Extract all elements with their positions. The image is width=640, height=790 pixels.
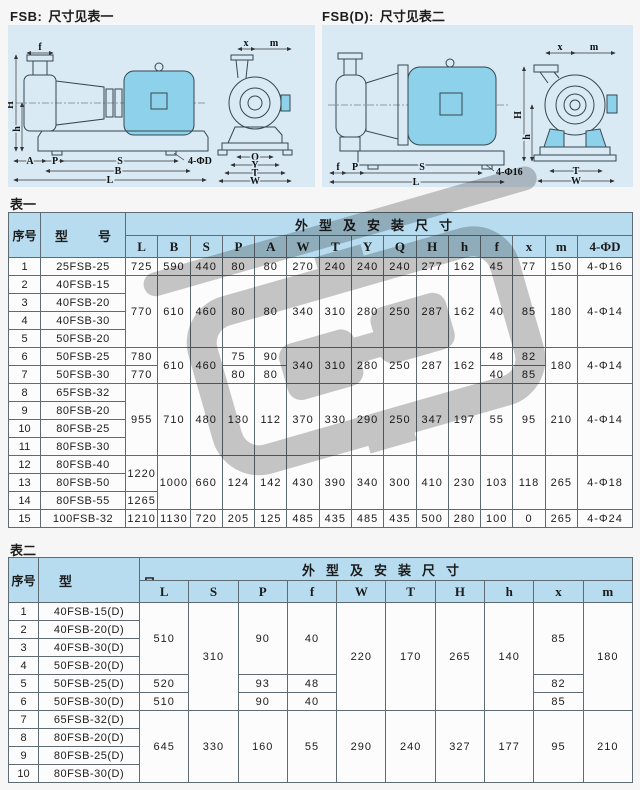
dimension-value-cell: 340 xyxy=(287,276,319,348)
dimension-value-cell: 780 xyxy=(126,348,158,366)
dimension-value-cell: 103 xyxy=(481,456,513,510)
dimension-value-cell: 162 xyxy=(448,258,480,276)
dimension-value-cell: 4-Φ18 xyxy=(577,456,632,510)
dimension-value-cell: 500 xyxy=(416,510,448,528)
group-header: 外型及安装尺寸 号 xyxy=(140,558,633,581)
dimension-value-cell: 725 xyxy=(126,258,158,276)
dimension-value-cell: 610 xyxy=(158,348,190,384)
dimension-value-cell: 660 xyxy=(190,456,222,510)
dimension-value-cell: 80 xyxy=(222,366,254,384)
dimension-value-cell: 4-Φ24 xyxy=(577,510,632,528)
dimension-value-cell: 720 xyxy=(190,510,222,528)
dimension-value-cell: 485 xyxy=(351,510,383,528)
dimension-value-cell: 130 xyxy=(222,384,254,456)
dimension-value-cell: 162 xyxy=(448,276,480,348)
dimension-value-cell: 90 xyxy=(238,693,287,711)
dimension-value-cell: 142 xyxy=(255,456,287,510)
row-index-cell: 8 xyxy=(9,384,41,402)
table1-body: 125FSB-257255904408080270240240240277162… xyxy=(9,258,633,528)
row-index-cell: 10 xyxy=(9,765,39,783)
table-row: 650FSB-257806104607590340310280250287162… xyxy=(9,348,633,366)
dimension-value-cell: 40 xyxy=(287,693,336,711)
dimension-value-cell: 90 xyxy=(238,603,287,675)
row-index-cell: 1 xyxy=(9,258,41,276)
col-letter: f xyxy=(287,581,336,603)
table-row: 650FSB-30(D)510904085 xyxy=(9,693,633,711)
dimension-value-cell: 170 xyxy=(386,603,435,711)
dimension-value-cell: 590 xyxy=(158,258,190,276)
col-letter: f xyxy=(481,236,513,258)
dimension-value-cell: 250 xyxy=(384,348,416,384)
fsbd-diagram-panel: f P S 4-Φ16 L x m H h T W xyxy=(322,25,633,187)
model-cell: 25FSB-25 xyxy=(41,258,126,276)
row-index-cell: 8 xyxy=(9,729,39,747)
row-index-cell: 4 xyxy=(9,657,39,675)
dimension-value-cell: 485 xyxy=(287,510,319,528)
dimension-value-cell: 280 xyxy=(448,510,480,528)
dim-label-h: h xyxy=(12,126,23,132)
row-index-cell: 13 xyxy=(9,474,41,492)
dimension-value-cell: 510 xyxy=(140,693,189,711)
dim-label-m: m xyxy=(590,42,599,53)
row-index-cell: 15 xyxy=(9,510,41,528)
dimension-value-cell: 90 xyxy=(255,348,287,366)
dimension-value-cell: 55 xyxy=(481,384,513,456)
dim-label-B: B xyxy=(115,166,122,177)
dimension-value-cell: 710 xyxy=(158,384,190,456)
dimension-value-cell: 48 xyxy=(287,675,336,693)
dimension-value-cell: 150 xyxy=(545,258,577,276)
dimension-value-cell: 0 xyxy=(513,510,545,528)
dimension-value-cell: 520 xyxy=(140,675,189,693)
dimension-value-cell: 277 xyxy=(416,258,448,276)
dimension-value-cell: 240 xyxy=(384,258,416,276)
table1-caption: 表一 xyxy=(10,194,36,213)
dimension-value-cell: 85 xyxy=(534,693,583,711)
dim-label-S: S xyxy=(419,162,425,173)
row-index-cell: 2 xyxy=(9,276,41,294)
table-row: 140FSB-15(D)510310904022017026514085180 xyxy=(9,603,633,621)
dimension-value-cell: 250 xyxy=(384,384,416,456)
table-row: 765FSB-32(D)6453301605529024032717795210 xyxy=(9,711,633,729)
dimension-value-cell: 100 xyxy=(481,510,513,528)
col-letter: T xyxy=(386,581,435,603)
dimension-value-cell: 93 xyxy=(238,675,287,693)
model-cell: 80FSB-20(D) xyxy=(39,729,140,747)
row-index-cell: 9 xyxy=(9,402,41,420)
dimension-value-cell: 280 xyxy=(351,348,383,384)
dimension-value-cell: 82 xyxy=(534,675,583,693)
dim-label-holes: 4-ΦD xyxy=(188,156,212,167)
fsb-pump-drawing: f H h A P S 4-ΦD B L x m Q Y T W xyxy=(8,25,315,187)
dimension-value-cell: 40 xyxy=(481,276,513,348)
model-cell: 50FSB-20 xyxy=(41,330,126,348)
col-letter: Q xyxy=(384,236,416,258)
motor-eyebolt xyxy=(446,59,454,67)
table-row: 240FSB-157706104608080340310280250287162… xyxy=(9,276,633,294)
dimension-value-cell: 287 xyxy=(416,348,448,384)
dimension-table-1: 序号 型 号 外型及安装尺寸 LBSPAWTYQHhfxm4-ΦD 125FSB… xyxy=(8,212,633,528)
dimension-value-cell: 240 xyxy=(351,258,383,276)
row-index-cell: 2 xyxy=(9,621,39,639)
col-letter: x xyxy=(513,236,545,258)
row-index-cell: 4 xyxy=(9,312,41,330)
dim-label-P: P xyxy=(352,162,358,173)
dim-label-W: W xyxy=(571,176,581,187)
dimension-value-cell: 250 xyxy=(384,276,416,348)
dimension-value-cell: 440 xyxy=(190,258,222,276)
fsbd-pump-drawing: f P S 4-Φ16 L x m H h T W xyxy=(322,25,633,187)
dimension-value-cell: 205 xyxy=(222,510,254,528)
row-index-cell: 6 xyxy=(9,693,39,711)
left-diagram-title: FSB:尺寸见表一 xyxy=(10,6,113,25)
col-letter: S xyxy=(190,236,222,258)
dimension-value-cell: 80 xyxy=(255,366,287,384)
col-letter: H xyxy=(435,581,484,603)
dim-label-x: x xyxy=(558,42,563,53)
model-cell: 80FSB-30 xyxy=(41,438,126,456)
dimension-value-cell: 430 xyxy=(287,456,319,510)
row-index-cell: 7 xyxy=(9,366,41,384)
dimension-value-cell: 80 xyxy=(255,276,287,348)
model-cell: 80FSB-40 xyxy=(41,456,126,474)
dimension-value-cell: 95 xyxy=(534,711,583,783)
col-letter: B xyxy=(158,236,190,258)
col-letter: A xyxy=(255,236,287,258)
dimension-value-cell: 240 xyxy=(319,258,351,276)
dim-label-x: x xyxy=(244,38,249,49)
dimension-value-cell: 210 xyxy=(545,384,577,456)
dimension-value-cell: 310 xyxy=(319,348,351,384)
dimension-value-cell: 1220 xyxy=(126,456,158,492)
col-letter: S xyxy=(189,581,238,603)
row-index-cell: 9 xyxy=(9,747,39,765)
table-row: 550FSB-25(D)520934882 xyxy=(9,675,633,693)
index-header: 序号 xyxy=(9,558,39,603)
col-letter: h xyxy=(485,581,534,603)
model-cell: 40FSB-15 xyxy=(41,276,126,294)
dimension-value-cell: 770 xyxy=(126,366,158,384)
dimension-value-cell: 330 xyxy=(189,711,238,783)
dimension-value-cell: 4-Φ16 xyxy=(577,258,632,276)
col-letter: m xyxy=(583,581,632,603)
dimension-value-cell: 162 xyxy=(448,348,480,384)
dimension-value-cell: 290 xyxy=(351,384,383,456)
dimension-value-cell: 95 xyxy=(513,384,545,456)
model-header-char2: 号 xyxy=(98,226,111,245)
dimension-value-cell: 1265 xyxy=(126,492,158,510)
dimension-value-cell: 40 xyxy=(481,366,513,384)
dimension-value-cell: 340 xyxy=(287,348,319,384)
dimension-value-cell: 4-Φ14 xyxy=(577,276,632,348)
model-header: 型 号 xyxy=(41,213,126,258)
dimension-value-cell: 410 xyxy=(416,456,448,510)
dimension-value-cell: 80 xyxy=(222,258,254,276)
dimension-value-cell: 370 xyxy=(287,384,319,456)
model-cell: 80FSB-25(D) xyxy=(39,747,140,765)
model-cell: 80FSB-30(D) xyxy=(39,765,140,783)
left-diagram-code: FSB: xyxy=(10,9,42,24)
dimension-value-cell: 45 xyxy=(481,258,513,276)
dimension-value-cell: 124 xyxy=(222,456,254,510)
motor-body xyxy=(124,71,194,135)
dimension-value-cell: 290 xyxy=(337,711,386,783)
dim-label-W: W xyxy=(250,176,260,187)
group-header: 外型及安装尺寸 xyxy=(126,213,633,236)
model-cell: 40FSB-20(D) xyxy=(39,621,140,639)
displaced-hao-char: 号 xyxy=(143,577,156,581)
dimension-value-cell: 310 xyxy=(189,603,238,711)
col-letter: W xyxy=(287,236,319,258)
table2-body: 140FSB-15(D)5103109040220170265140851802… xyxy=(9,603,633,783)
model-header-char1: 型 xyxy=(55,226,68,245)
row-index-cell: 14 xyxy=(9,492,41,510)
motor-eyebolt xyxy=(155,63,163,71)
dimension-value-cell: 118 xyxy=(513,456,545,510)
dimension-value-cell: 340 xyxy=(351,456,383,510)
dimension-value-cell: 140 xyxy=(485,603,534,711)
row-index-cell: 1 xyxy=(9,603,39,621)
col-letter: m xyxy=(545,236,577,258)
dimension-value-cell: 1210 xyxy=(126,510,158,528)
table-row: 125FSB-257255904408080270240240240277162… xyxy=(9,258,633,276)
right-diagram-note: 尺寸见表二 xyxy=(380,9,445,24)
dimension-value-cell: 460 xyxy=(190,276,222,348)
index-header: 序号 xyxy=(9,213,41,258)
dim-label-f: f xyxy=(38,42,42,53)
dim-label-f: f xyxy=(336,162,340,173)
dimension-value-cell: 1000 xyxy=(158,456,190,510)
dimension-value-cell: 180 xyxy=(545,348,577,384)
dimension-value-cell: 645 xyxy=(140,711,189,783)
col-letter: T xyxy=(319,236,351,258)
dimension-value-cell: 1130 xyxy=(158,510,190,528)
dimension-value-cell: 265 xyxy=(545,456,577,510)
dimension-value-cell: 180 xyxy=(583,603,632,711)
row-index-cell: 3 xyxy=(9,294,41,312)
dimension-value-cell: 85 xyxy=(534,603,583,675)
dim-label-L: L xyxy=(107,175,114,186)
dimension-value-cell: 210 xyxy=(583,711,632,783)
dimension-value-cell: 955 xyxy=(126,384,158,456)
col-letter: x xyxy=(534,581,583,603)
table-row: 15100FSB-3212101130720205125485435485435… xyxy=(9,510,633,528)
dimension-value-cell: 85 xyxy=(513,366,545,384)
dimension-value-cell: 240 xyxy=(386,711,435,783)
col-letter: L xyxy=(140,581,189,603)
dim-label-L: L xyxy=(413,177,420,187)
row-index-cell: 7 xyxy=(9,711,39,729)
dimension-value-cell: 480 xyxy=(190,384,222,456)
col-letter: P xyxy=(238,581,287,603)
table-row: 1280FSB-40122010006601241424303903403004… xyxy=(9,456,633,474)
dimension-value-cell: 40 xyxy=(287,603,336,675)
group-header-text: 外型及安装尺寸 xyxy=(302,563,470,578)
dimension-value-cell: 220 xyxy=(337,603,386,711)
model-cell: 50FSB-25 xyxy=(41,348,126,366)
dimension-value-cell: 287 xyxy=(416,276,448,348)
dimension-value-cell: 177 xyxy=(485,711,534,783)
dimension-value-cell: 230 xyxy=(448,456,480,510)
col-letter: Y xyxy=(351,236,383,258)
right-diagram-code: FSB(D): xyxy=(322,9,374,24)
row-index-cell: 3 xyxy=(9,639,39,657)
dimension-value-cell: 390 xyxy=(319,456,351,510)
model-cell: 40FSB-30(D) xyxy=(39,639,140,657)
dimension-value-cell: 55 xyxy=(287,711,336,783)
motor-body xyxy=(408,67,496,145)
dimension-value-cell: 85 xyxy=(513,276,545,348)
col-letter: W xyxy=(337,581,386,603)
dimension-value-cell: 265 xyxy=(435,603,484,711)
col-letter: H xyxy=(416,236,448,258)
dimension-value-cell: 327 xyxy=(435,711,484,783)
dim-label-A: A xyxy=(26,156,34,167)
row-index-cell: 5 xyxy=(9,330,41,348)
dimension-value-cell: 330 xyxy=(319,384,351,456)
dim-label-h: h xyxy=(522,134,533,140)
model-cell: 40FSB-15(D) xyxy=(39,603,140,621)
dimension-value-cell: 435 xyxy=(319,510,351,528)
left-diagram-note: 尺寸见表一 xyxy=(48,9,113,24)
dimension-value-cell: 310 xyxy=(319,276,351,348)
dim-label-H: H xyxy=(513,111,524,119)
row-index-cell: 5 xyxy=(9,675,39,693)
dimension-value-cell: 610 xyxy=(158,276,190,348)
model-cell: 80FSB-50 xyxy=(41,474,126,492)
model-cell: 50FSB-20(D) xyxy=(39,657,140,675)
dimension-value-cell: 460 xyxy=(190,348,222,384)
row-index-cell: 11 xyxy=(9,438,41,456)
table-row: 865FSB-329557104801301123703302902503471… xyxy=(9,384,633,402)
model-cell: 80FSB-25 xyxy=(41,420,126,438)
model-cell: 65FSB-32 xyxy=(41,384,126,402)
col-letter: L xyxy=(126,236,158,258)
model-cell: 80FSB-55 xyxy=(41,492,126,510)
dimension-value-cell: 435 xyxy=(384,510,416,528)
dimension-value-cell: 112 xyxy=(255,384,287,456)
dim-label-m: m xyxy=(270,38,279,49)
dimension-value-cell: 80 xyxy=(255,258,287,276)
model-cell: 40FSB-30 xyxy=(41,312,126,330)
dimension-value-cell: 280 xyxy=(351,276,383,348)
row-index-cell: 6 xyxy=(9,348,41,366)
dimension-value-cell: 77 xyxy=(513,258,545,276)
model-cell: 50FSB-30(D) xyxy=(39,693,140,711)
dim-label-H: H xyxy=(8,101,16,109)
model-cell: 50FSB-30 xyxy=(41,366,126,384)
dimension-value-cell: 510 xyxy=(140,603,189,675)
dim-label-P: P xyxy=(52,156,58,167)
dimension-value-cell: 125 xyxy=(255,510,287,528)
dimension-value-cell: 770 xyxy=(126,276,158,348)
col-letter: 4-ΦD xyxy=(577,236,632,258)
dimension-value-cell: 300 xyxy=(384,456,416,510)
dimension-table-2: 序号 型 外型及安装尺寸 号 LSPfWTHhxm 140FSB-15(D)51… xyxy=(8,557,633,783)
dimension-value-cell: 82 xyxy=(513,348,545,366)
model-cell: 65FSB-32(D) xyxy=(39,711,140,729)
model-header: 型 xyxy=(39,558,140,603)
dimension-value-cell: 270 xyxy=(287,258,319,276)
dimension-value-cell: 4-Φ14 xyxy=(577,384,632,456)
model-cell: 80FSB-20 xyxy=(41,402,126,420)
model-cell: 100FSB-32 xyxy=(41,510,126,528)
col-letter: P xyxy=(222,236,254,258)
fsb-diagram-panel: f H h A P S 4-ΦD B L x m Q Y T W xyxy=(8,25,315,187)
model-cell: 40FSB-20 xyxy=(41,294,126,312)
dimension-value-cell: 48 xyxy=(481,348,513,366)
dimension-value-cell: 197 xyxy=(448,384,480,456)
col-letter: h xyxy=(448,236,480,258)
model-cell: 50FSB-25(D) xyxy=(39,675,140,693)
row-index-cell: 10 xyxy=(9,420,41,438)
dimension-value-cell: 80 xyxy=(222,276,254,348)
dimension-value-cell: 180 xyxy=(545,276,577,348)
dimension-value-cell: 347 xyxy=(416,384,448,456)
row-index-cell: 12 xyxy=(9,456,41,474)
dimension-value-cell: 75 xyxy=(222,348,254,366)
right-diagram-title: FSB(D):尺寸见表二 xyxy=(322,6,445,25)
dim-label-holes: 4-Φ16 xyxy=(496,167,523,178)
pump-base xyxy=(358,151,504,165)
dimension-value-cell: 160 xyxy=(238,711,287,783)
dimension-value-cell: 265 xyxy=(545,510,577,528)
dimension-value-cell: 4-Φ14 xyxy=(577,348,632,384)
